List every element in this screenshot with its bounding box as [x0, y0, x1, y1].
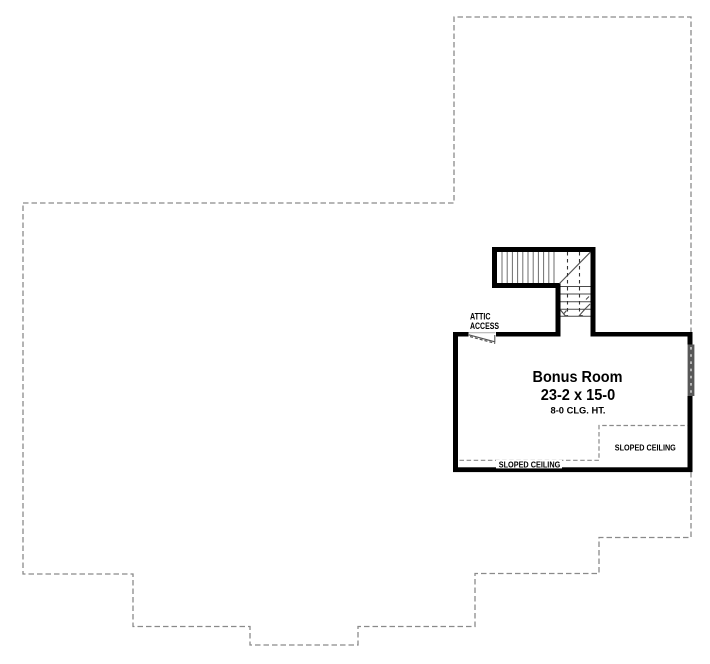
svg-text:SLOPED CEILING: SLOPED CEILING	[615, 442, 676, 452]
svg-text:Bonus Room: Bonus Room	[533, 369, 623, 386]
svg-text:23-2 x 15-0: 23-2 x 15-0	[541, 387, 616, 404]
svg-text:SLOPED CEILING: SLOPED CEILING	[499, 460, 561, 470]
svg-text:ACCESS: ACCESS	[470, 321, 499, 331]
svg-text:8-0 CLG. HT.: 8-0 CLG. HT.	[551, 405, 606, 416]
